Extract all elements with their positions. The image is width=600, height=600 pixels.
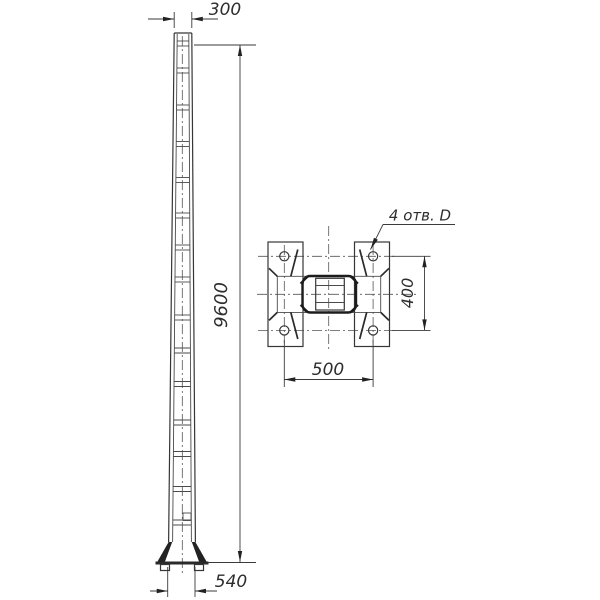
- front-view-pole: [156, 33, 209, 575]
- dim-bolt-spacing-height-label: 400: [398, 278, 417, 309]
- dimension-pole-height: 9600: [194, 45, 256, 563]
- dimension-base-width: 540: [150, 567, 247, 597]
- base-flare-left: [158, 542, 173, 562]
- holes-callout: 4 отв. D: [371, 207, 456, 250]
- pole-cable-hatch: [183, 513, 191, 521]
- base-flare-right: [192, 542, 207, 562]
- drawing-canvas: 300 9600 540: [0, 0, 600, 600]
- dim-top-width-label: 300: [209, 0, 241, 20]
- dimension-top-width: 300: [148, 0, 241, 28]
- anchor-tab-right: [195, 565, 204, 571]
- dim-base-width-label: 540: [215, 572, 247, 592]
- technical-drawing: 300 9600 540: [0, 0, 600, 600]
- pole-outer-edge-right: [192, 33, 196, 542]
- dim-pole-height-label: 9600: [211, 282, 232, 328]
- dim-bolt-spacing-width-label: 500: [312, 360, 344, 380]
- dimension-bolt-spacing-height: 400: [398, 256, 427, 330]
- holes-callout-label: 4 отв. D: [389, 207, 451, 225]
